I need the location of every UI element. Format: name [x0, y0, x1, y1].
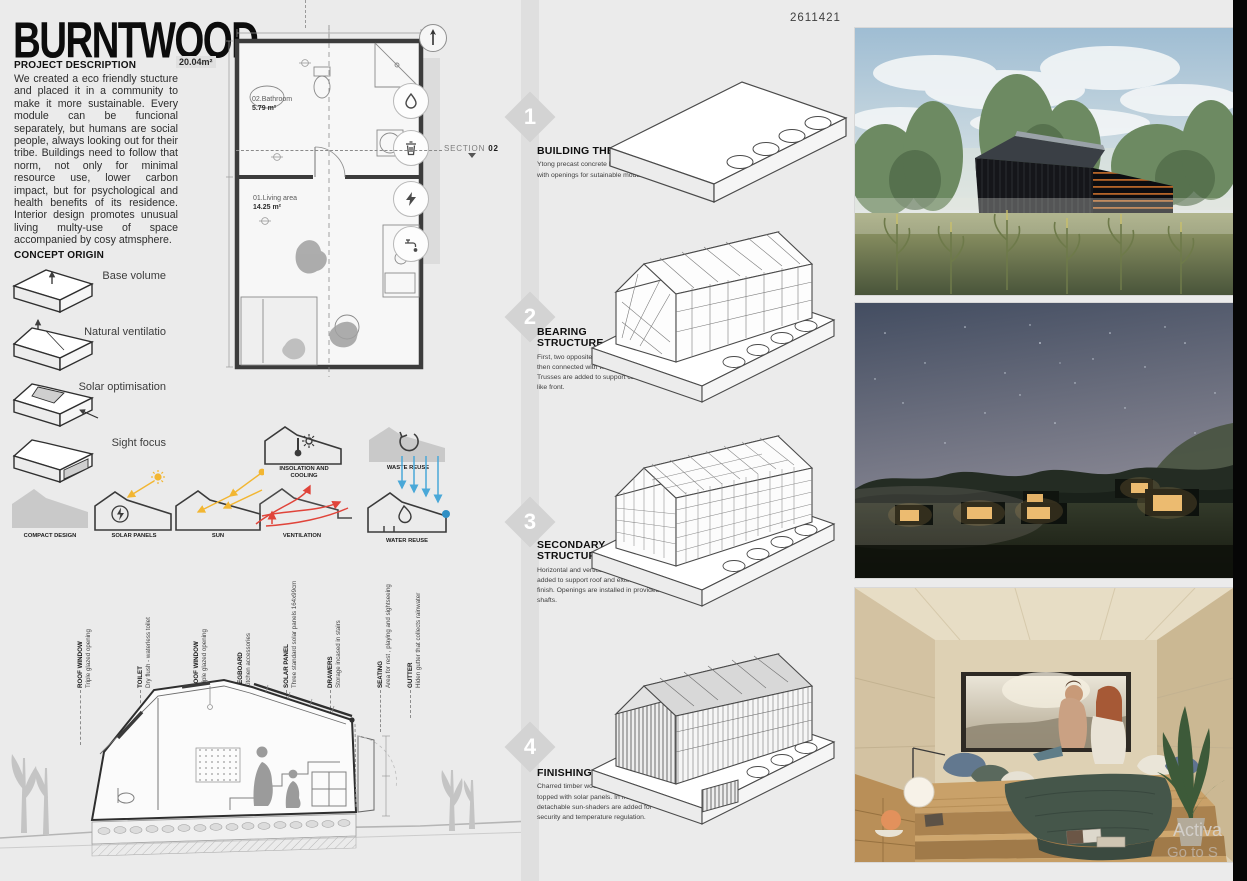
strategy-label-water: WATER REUSE — [372, 538, 442, 545]
living-area: 14.25 m² — [253, 204, 282, 211]
night-render-photo — [855, 303, 1233, 578]
trash-icon — [402, 139, 420, 157]
step-number-badge: 4 — [505, 722, 556, 773]
axon-step-4-finishing — [582, 632, 852, 832]
north-arrow-icon — [419, 24, 447, 52]
strategy-label-solar: SOLAR PANELS — [98, 533, 170, 540]
air-flow-arrows-icon — [252, 468, 356, 532]
step-number-badge: 1 — [505, 92, 556, 143]
water-drop-icon — [362, 452, 452, 536]
utility-faucet-badge — [393, 226, 429, 262]
axon-step-1-pad — [590, 52, 860, 222]
bathroom-area: 5.79 m² — [252, 105, 277, 112]
concept-label: Natural ventilatio — [60, 326, 166, 338]
section-drawing — [0, 640, 532, 881]
competition-id: 2611421 — [790, 12, 841, 24]
bathroom-label: 02.Bathroom — [252, 96, 292, 103]
project-description-text: We created a eco friendly stucture and p… — [14, 73, 178, 246]
concept-label: Solar optimisation — [60, 381, 166, 393]
living-label: 01.Living area — [253, 195, 297, 202]
total-area-label: 20.04m² — [176, 56, 216, 68]
bolt-icon — [402, 190, 420, 208]
sun-rays-icon — [172, 468, 264, 532]
section-arrow-icon — [468, 153, 476, 158]
solar-panels-icon — [92, 470, 174, 532]
strategy-label-compact: COMPACT DESIGN — [10, 533, 90, 540]
plan-axis-dash — [305, 0, 306, 28]
concept-label: Base volume — [60, 270, 166, 282]
concept-origin-heading: CONCEPT ORIGIN — [14, 250, 104, 261]
utility-water-badge — [393, 83, 429, 119]
presentation-board: BURNTWOOD PROJECT DESCRIPTION We created… — [0, 0, 1247, 881]
axon-step-2-bearing — [582, 222, 852, 407]
interior-render-photo: Activa Go to S — [855, 588, 1233, 862]
section-cut-line — [236, 150, 442, 151]
utility-waste-badge — [393, 130, 429, 166]
axon-step-3-secondary — [582, 422, 852, 612]
screen-edge-strip — [1233, 0, 1247, 881]
os-activation-watermark-line2: Go to S — [1167, 844, 1218, 861]
os-activation-watermark-line1: Activa — [1173, 820, 1222, 841]
section-label: SECTION 02 — [444, 144, 499, 153]
concept-label: Sight focus — [60, 437, 166, 449]
utility-electricity-badge — [393, 181, 429, 217]
project-description-heading: PROJECT DESCRIPTION — [14, 60, 136, 71]
strategy-label-ventilation: VENTILATION — [262, 533, 342, 540]
thermometer-sun-icon — [262, 424, 344, 466]
droplet-icon — [402, 92, 420, 110]
compact-design-icon — [8, 486, 92, 530]
faucet-icon — [402, 235, 420, 253]
exterior-render-photo — [855, 28, 1233, 295]
strategy-label-sun: SUN — [186, 533, 250, 540]
